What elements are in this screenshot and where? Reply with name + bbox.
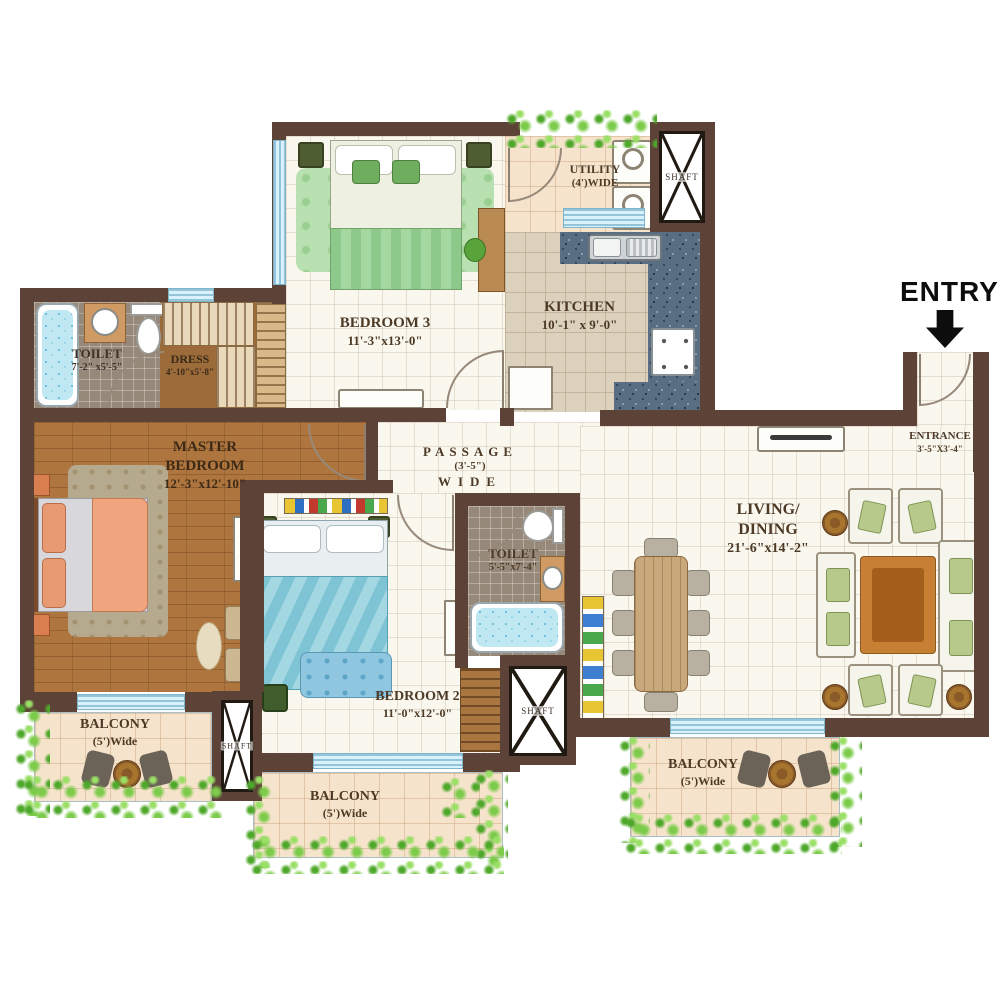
shaft-top-box: SHAFT — [659, 131, 705, 223]
wall-segment — [825, 718, 989, 737]
room-name-line1: MASTER — [140, 438, 270, 457]
wall-segment — [565, 493, 580, 718]
armchair — [898, 488, 943, 544]
bedroom3-cushion-1 — [352, 160, 380, 184]
shaft-left-label: SHAFT — [221, 742, 253, 751]
bedroom3-window — [273, 140, 286, 285]
master-duvet — [92, 498, 148, 612]
sofa-left — [816, 552, 856, 658]
living-balcony-window — [670, 718, 825, 734]
room-dims: 21'-6"x14'-2" — [698, 540, 838, 558]
room-dims: 5'-5"x7'-4" — [468, 562, 558, 575]
balcony-left-plants-bottom — [22, 776, 222, 818]
toilet1-window — [168, 288, 214, 302]
room-name: UTILITY — [545, 162, 645, 177]
room-name: BALCONY — [50, 716, 180, 734]
passage-label: PASSAGE (3'-5") WIDE — [400, 444, 540, 490]
armchair — [848, 488, 893, 544]
side-table-round — [822, 684, 848, 710]
bedroom3-cushion-2 — [392, 160, 420, 184]
utility-planter — [505, 110, 657, 148]
living-tv-soundbar — [770, 435, 832, 440]
room-name: BALCONY — [648, 756, 758, 774]
armchair — [848, 664, 893, 716]
wall-segment — [455, 493, 577, 506]
entry-arrow-icon — [926, 310, 964, 348]
room-dims: (3'-5") — [400, 460, 540, 474]
room-name-line2: BEDROOM — [140, 457, 270, 476]
room-dims: 3'-5"X3'-4" — [898, 444, 982, 455]
dining-chair — [612, 650, 636, 676]
room-dims: (5')Wide — [50, 734, 180, 749]
master-bedroom-label: MASTER BEDROOM 12'-3"x12'-10" — [140, 438, 270, 492]
entrance-label: ENTRANCE 3'-5"X3'-4" — [898, 430, 982, 455]
side-table-round — [946, 684, 972, 710]
bedroom3-label: BEDROOM 3 11'-3"x13'-0" — [305, 314, 465, 349]
bedroom3-nightstand-right — [466, 142, 492, 168]
kitchen-counter-bottom — [614, 382, 701, 412]
coffee-table-top — [872, 568, 924, 642]
balcony-right-table — [768, 760, 796, 788]
bedroom2-balcony-plant — [440, 778, 480, 818]
dining-chair — [686, 610, 710, 636]
utility-service-window — [563, 208, 645, 228]
bedroom3-door-leaf — [502, 352, 504, 408]
bedroom2-door-leaf — [452, 495, 454, 551]
room-dims: 11'-0"x12'-0" — [355, 706, 480, 721]
kitchen-sink-drainboard — [626, 238, 657, 257]
bedroom2-plant-pot — [262, 684, 288, 712]
room-name: BALCONY — [280, 788, 410, 806]
balcony-mid-label: BALCONY (5')Wide — [280, 788, 410, 821]
dining-chair — [686, 650, 710, 676]
room-dims: 11'-3"x13'-0" — [305, 333, 465, 349]
balcony-right-label: BALCONY (5')Wide — [648, 756, 758, 789]
bedroom2-pillow-2 — [326, 525, 384, 553]
room-name: KITCHEN — [512, 298, 647, 317]
dining-table — [634, 556, 688, 692]
armchair — [898, 664, 943, 716]
toilet1-washbasin — [91, 308, 119, 336]
kitchen-sink-basin — [593, 238, 621, 257]
wall-segment — [20, 288, 34, 712]
bedroom3-nightstand-left — [298, 142, 324, 168]
wall-segment — [500, 408, 514, 426]
toilet2-label: TOILET 5'-5"x7'-4" — [468, 546, 558, 575]
wall-segment — [214, 288, 286, 302]
wall-segment — [455, 493, 468, 668]
bedroom2-balcony-window — [313, 753, 463, 769]
entrance-door-leaf — [919, 354, 921, 406]
balcony-right-plants-bottom — [624, 814, 842, 854]
room-name: BEDROOM 3 — [305, 314, 465, 333]
wall-segment — [185, 692, 213, 712]
entry-label: ENTRY — [900, 276, 999, 308]
toilet2-bathtub-water — [476, 608, 558, 647]
room-name-line1: LIVING/ — [698, 500, 838, 520]
room-dims: (5')Wide — [648, 774, 758, 789]
room-dims: 7'-2" x5'-5" — [42, 362, 152, 375]
wall-segment — [565, 718, 670, 737]
dress-rack-top — [162, 302, 254, 346]
shaft-top-label: SHAFT — [664, 172, 700, 182]
master-pillow-2 — [42, 558, 66, 608]
wall-segment — [600, 410, 917, 426]
bedroom2-label: BEDROOM 2 11'-0"x12'-0" — [355, 688, 480, 721]
bedroom3-desk-chair — [464, 238, 486, 262]
toilet1-wc-tank — [130, 303, 166, 316]
room-dims: (5')Wide — [280, 806, 410, 821]
room-name: ENTRANCE — [898, 430, 982, 444]
bedroom3-dresser — [338, 389, 424, 409]
balcony-left-label: BALCONY (5')Wide — [50, 716, 180, 749]
room-name: DRESS — [152, 352, 228, 367]
living-bookshelf — [582, 596, 604, 720]
room-name: TOILET — [42, 346, 152, 362]
wall-segment — [272, 122, 520, 136]
bedroom3-duvet — [330, 228, 462, 290]
kitchen-label: KITCHEN 10'-1" x 9'-0" — [512, 298, 647, 333]
master-balcony-window — [77, 694, 185, 710]
wall-segment — [903, 352, 917, 426]
utility-door-leaf — [508, 148, 510, 202]
dining-chair — [686, 570, 710, 596]
room-dims: 10'-1" x 9'-0" — [512, 317, 647, 333]
shaft-mid-label: SHAFT — [520, 706, 556, 716]
room-dims: (4')WIDE — [545, 177, 645, 191]
master-oval-rug — [196, 622, 222, 670]
toilet2-wc-bowl — [522, 510, 554, 542]
room-name: PASSAGE — [400, 444, 540, 460]
wall-segment — [286, 408, 446, 422]
shaft-mid-box: SHAFT — [509, 666, 567, 756]
toilet1-label: TOILET 7'-2" x5'-5" — [42, 346, 152, 375]
bedroom2-pillow-1 — [263, 525, 321, 553]
dining-chair — [612, 610, 636, 636]
floor-plan: SHAFT SHAFT SHAFT BEDROOM 3 11'-3"x13'-0… — [0, 0, 1000, 1000]
kitchen-fridge — [508, 366, 553, 410]
utility-label: UTILITY (4')WIDE — [545, 162, 645, 191]
dining-chair — [644, 692, 678, 712]
room-name: TOILET — [468, 546, 558, 562]
dress-label: DRESS 4'-10"x5'-8" — [152, 352, 228, 378]
room-sub: WIDE — [400, 474, 540, 490]
wardrobe-column — [256, 302, 286, 408]
dining-chair — [644, 538, 678, 558]
wall-segment — [974, 470, 989, 737]
master-pillow-1 — [42, 503, 66, 553]
kitchen-hob — [651, 328, 695, 376]
bedroom2-shelf — [284, 498, 388, 514]
wall-segment — [20, 288, 168, 302]
wall-segment — [20, 408, 310, 422]
room-name-line2: DINING — [698, 520, 838, 540]
wall-segment — [253, 753, 313, 772]
room-dims: 12'-3"x12'-10" — [140, 476, 270, 492]
room-dims: 4'-10"x5'-8" — [152, 367, 228, 378]
living-dining-label: LIVING/ DINING 21'-6"x14'-2" — [698, 500, 838, 558]
dining-chair — [612, 570, 636, 596]
room-name: BEDROOM 2 — [355, 688, 480, 706]
balcony-mid-plants-bottom — [250, 836, 504, 874]
